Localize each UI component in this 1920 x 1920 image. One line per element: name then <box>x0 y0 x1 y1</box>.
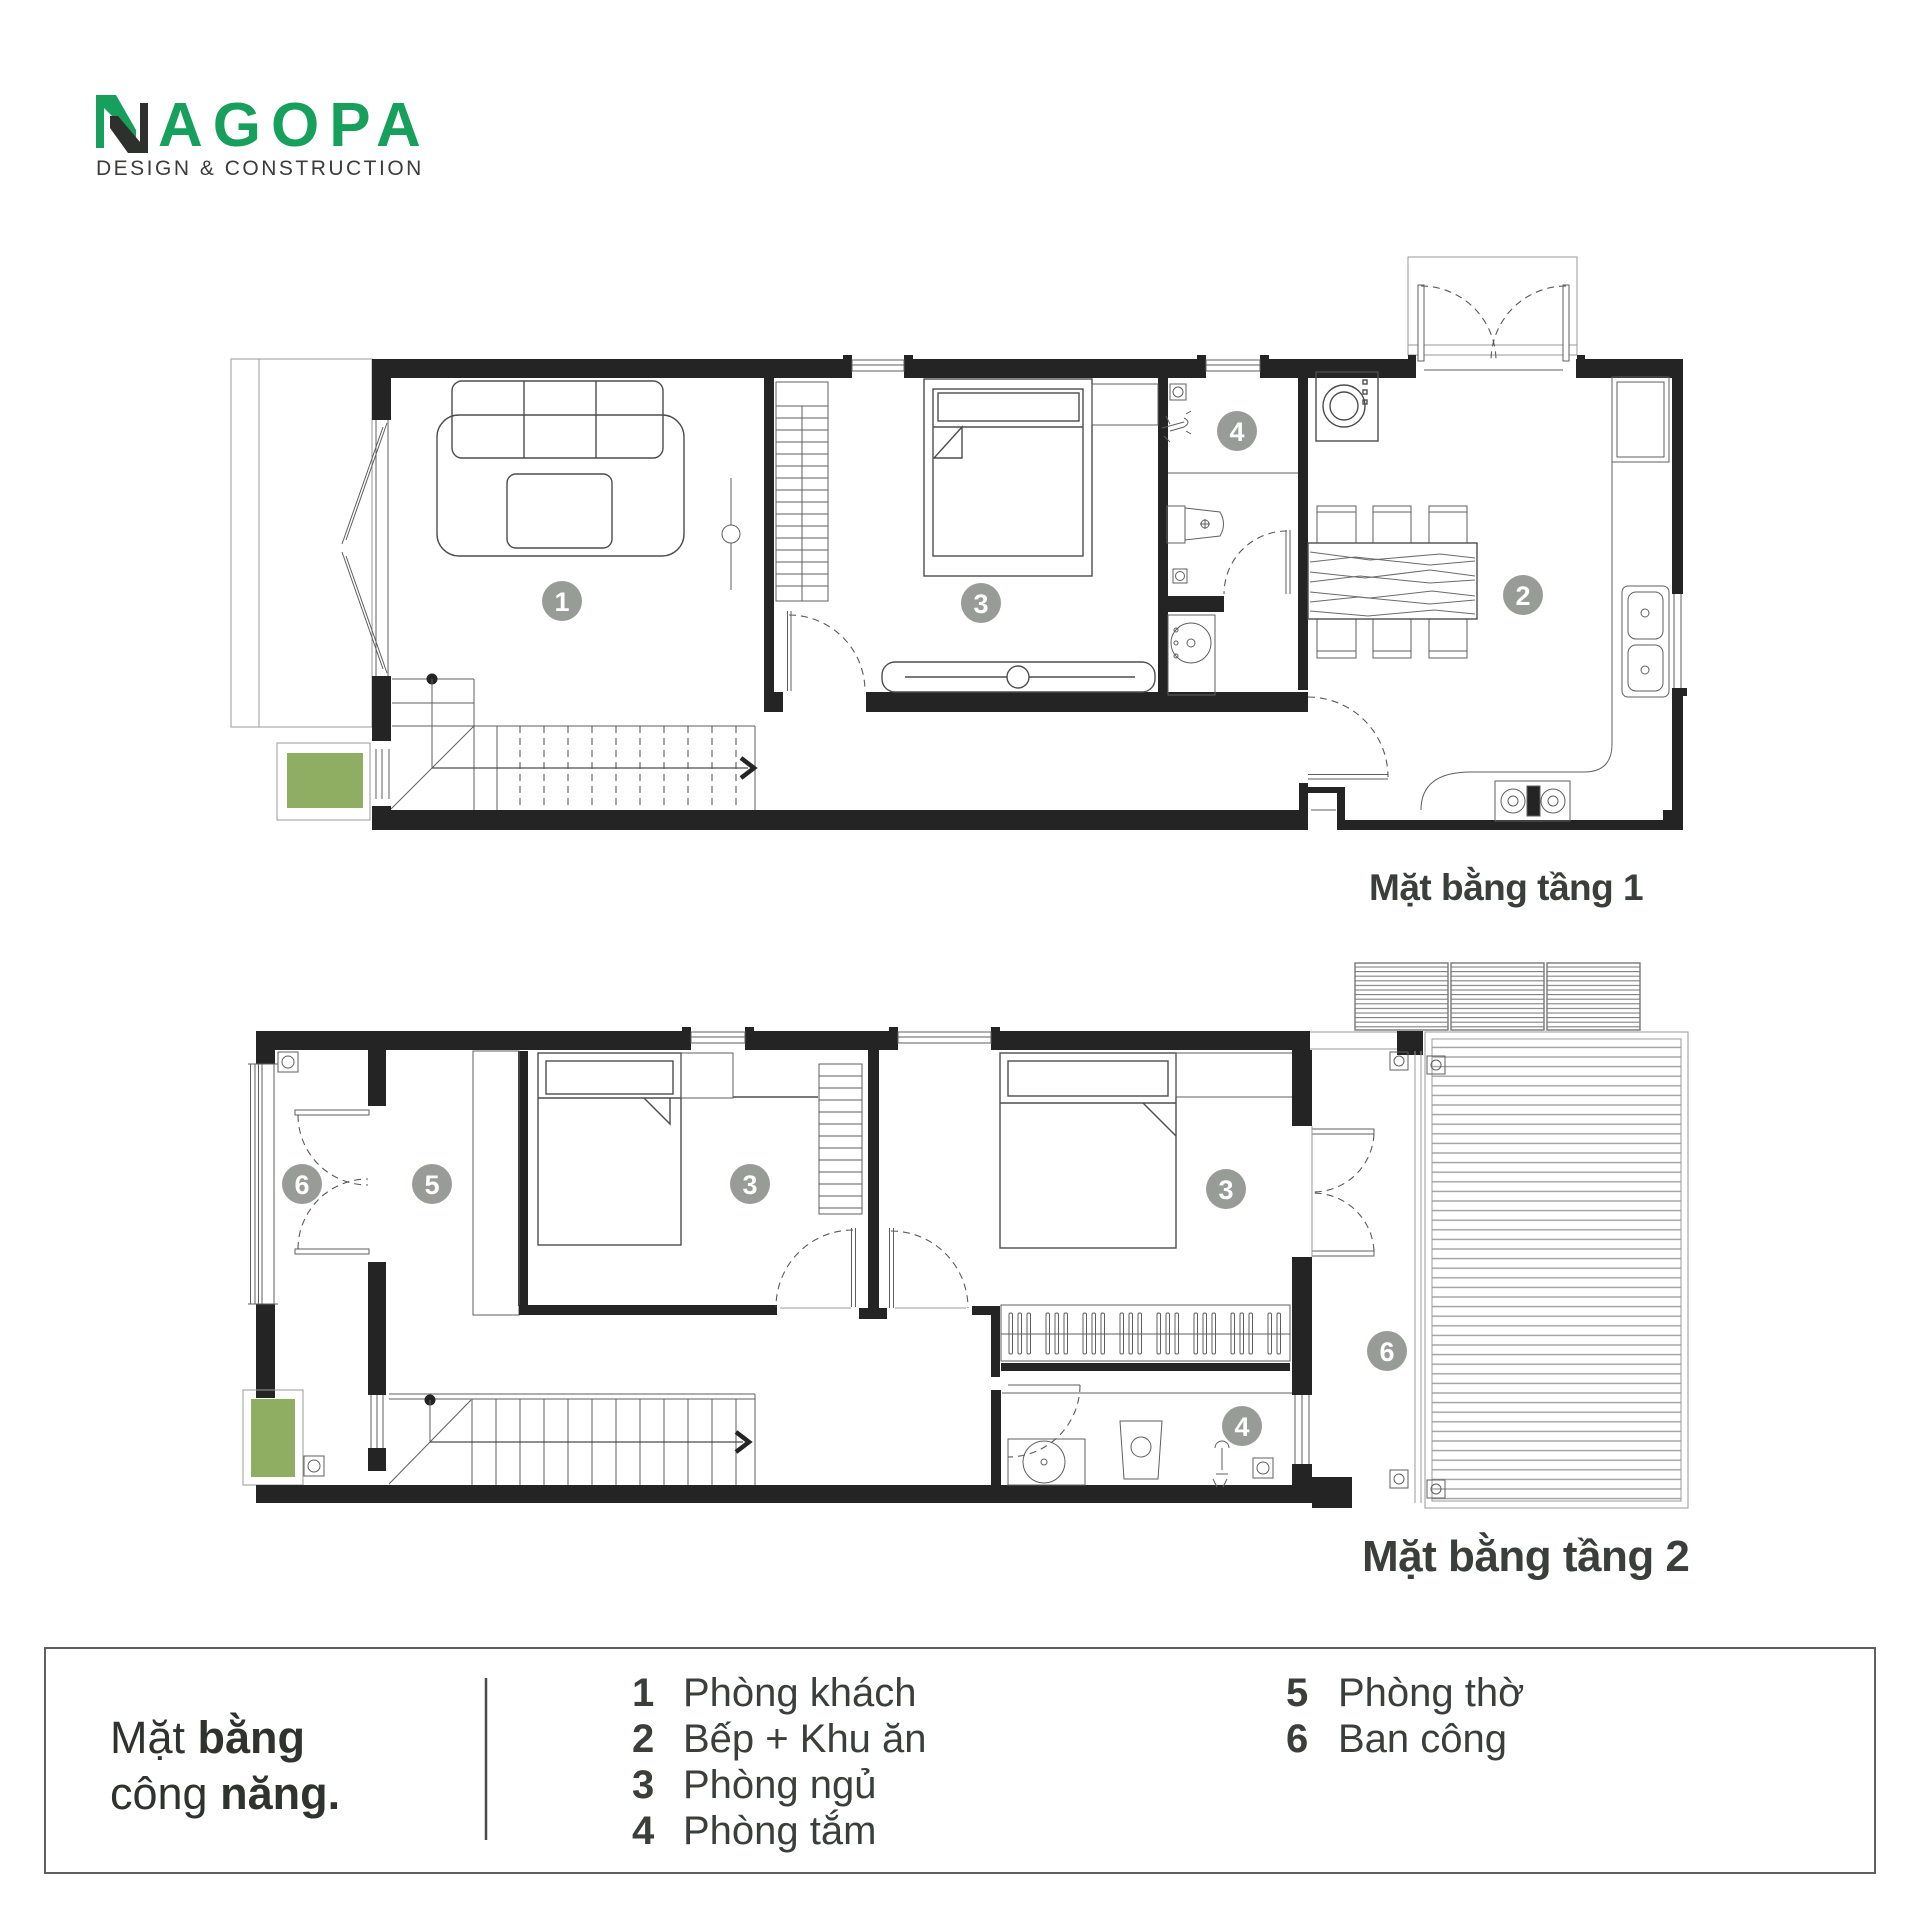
svg-text:AGOPA: AGOPA <box>158 91 431 160</box>
svg-text:5: 5 <box>1286 1671 1308 1715</box>
svg-text:3: 3 <box>742 1170 757 1200</box>
svg-text:Mặt bằng: Mặt bằng <box>110 1712 305 1763</box>
svg-text:Mặt bằng tầng 1: Mặt bằng tầng 1 <box>1369 866 1643 908</box>
svg-text:Phòng khách: Phòng khách <box>683 1671 917 1715</box>
svg-text:6: 6 <box>294 1170 309 1200</box>
svg-text:6: 6 <box>1379 1337 1394 1367</box>
svg-text:2: 2 <box>1515 581 1530 611</box>
svg-text:4: 4 <box>632 1809 655 1853</box>
svg-text:Phòng ngủ: Phòng ngủ <box>683 1763 877 1807</box>
svg-text:Phòng thờ: Phòng thờ <box>1338 1671 1524 1715</box>
svg-text:2: 2 <box>632 1717 654 1761</box>
svg-text:Ban công: Ban công <box>1338 1717 1507 1761</box>
svg-text:3: 3 <box>1218 1175 1233 1205</box>
svg-text:4: 4 <box>1229 417 1244 447</box>
svg-text:3: 3 <box>973 589 988 619</box>
svg-text:Bếp + Khu ăn: Bếp + Khu ăn <box>683 1717 927 1761</box>
svg-text:Phòng tắm: Phòng tắm <box>683 1808 876 1853</box>
svg-text:6: 6 <box>1286 1717 1308 1761</box>
svg-text:Mặt bằng tầng 2: Mặt bằng tầng 2 <box>1362 1531 1689 1581</box>
svg-text:1: 1 <box>632 1671 654 1715</box>
svg-text:5: 5 <box>424 1170 439 1200</box>
svg-text:DESIGN & CONSTRUCTION: DESIGN & CONSTRUCTION <box>96 157 424 180</box>
svg-text:3: 3 <box>632 1763 654 1807</box>
svg-text:1: 1 <box>554 587 569 617</box>
svg-text:công năng.: công năng. <box>110 1768 340 1819</box>
svg-text:4: 4 <box>1234 1412 1249 1442</box>
